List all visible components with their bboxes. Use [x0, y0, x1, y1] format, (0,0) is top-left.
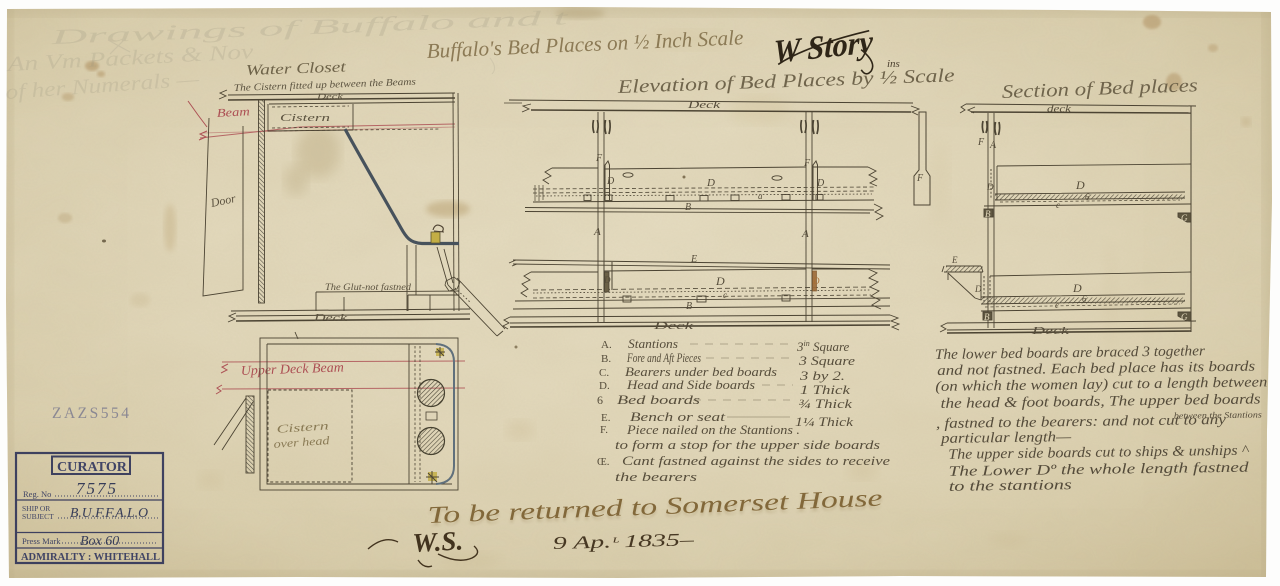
svg-text:3 Square: 3 Square [798, 353, 855, 368]
svg-text:F.: F. [600, 424, 608, 436]
svg-text:D: D [715, 274, 725, 288]
svg-text:G: G [1181, 312, 1188, 322]
svg-text:to form a stop for the upper s: to form a stop for the upper side boards [615, 437, 880, 452]
svg-text:E: E [690, 254, 697, 265]
svg-text:6: 6 [1082, 294, 1087, 304]
svg-text:c: c [1055, 300, 1059, 310]
svg-text:ZAZS554: ZAZS554 [52, 405, 132, 422]
svg-text:ins: ins [887, 58, 900, 70]
svg-text:Fore and Aft Pieces: Fore and Aft Pieces [626, 350, 701, 365]
svg-text:Cistern: Cistern [280, 112, 331, 124]
svg-text:Bed boards: Bed boards [617, 392, 700, 407]
svg-text:3 by 2.: 3 by 2. [799, 368, 845, 383]
svg-text:E.: E. [601, 412, 611, 424]
svg-text:F: F [977, 137, 985, 148]
svg-text:Deck: Deck [686, 100, 720, 111]
svg-text:D: D [812, 276, 820, 286]
svg-text:deck: deck [1047, 104, 1072, 115]
svg-text:particular length—: particular length— [940, 429, 1071, 447]
svg-text:D: D [1072, 281, 1082, 295]
svg-text:F: F [916, 173, 924, 184]
svg-text:D: D [974, 284, 982, 294]
svg-text:E: E [951, 255, 958, 265]
svg-text:SUBJECT: SUBJECT [22, 512, 54, 521]
svg-text:B: B [985, 209, 991, 219]
svg-text:to the stantions: to the stantions [949, 477, 1073, 495]
svg-text:between the Stantions: between the Stantions [1174, 409, 1263, 420]
svg-text:The Glut-not fastned: The Glut-not fastned [325, 282, 412, 292]
svg-text:A.: A. [601, 339, 612, 351]
svg-text:1¼ Thick: 1¼ Thick [795, 414, 853, 429]
svg-text:Deck: Deck [652, 320, 695, 332]
svg-text:A: A [989, 140, 997, 151]
svg-text:B: B [685, 202, 691, 213]
svg-text:6: 6 [1085, 192, 1090, 202]
svg-text:Beam: Beam [216, 104, 250, 120]
svg-text:B.U.F.F.A.L.O: B.U.F.F.A.L.O [70, 506, 148, 521]
svg-text:a: a [758, 191, 763, 201]
svg-text:9 Ap.ᶫ 1835–: 9 Ap.ᶫ 1835– [553, 529, 696, 553]
svg-text:Deck: Deck [1030, 325, 1070, 337]
svg-text:c: c [1056, 200, 1060, 210]
svg-text:Press Mark: Press Mark [22, 536, 61, 546]
svg-text:Cant fastned against the sides: Cant fastned against the sides to receiv… [622, 453, 890, 468]
svg-text:the bearers: the bearers [615, 469, 697, 484]
svg-text:Reg. No: Reg. No [23, 489, 51, 499]
svg-text:CURATOR: CURATOR [57, 459, 127, 474]
svg-text:D: D [606, 176, 615, 187]
svg-text:Œ.: Œ. [597, 456, 610, 468]
svg-text:6: 6 [597, 393, 603, 407]
svg-text:B.: B. [601, 353, 611, 365]
svg-text:Piece nailed on the Stantions: Piece nailed on the Stantions . [626, 422, 800, 437]
svg-text:Stantions: Stantions [628, 336, 678, 351]
svg-text:Head and Side boards: Head and Side boards [626, 377, 755, 392]
svg-text:Deck: Deck [316, 91, 344, 101]
svg-text:Box 60: Box 60 [80, 534, 119, 549]
svg-text:D.: D. [599, 380, 610, 392]
svg-text:1 Thick: 1 Thick [800, 382, 850, 397]
svg-text:B: B [984, 312, 990, 322]
svg-text:7575: 7575 [76, 479, 118, 498]
svg-text:¾ Thick: ¾ Thick [798, 396, 852, 411]
svg-text:D: D [986, 182, 994, 192]
svg-text:F: F [595, 153, 603, 164]
svg-text:W.S.: W.S. [412, 525, 464, 558]
svg-text:G: G [1181, 213, 1188, 223]
svg-text:D: D [816, 178, 825, 189]
svg-text:D: D [1075, 178, 1085, 192]
svg-text:A: A [593, 226, 601, 238]
svg-text:Deck: Deck [312, 313, 347, 324]
svg-text:B: B [686, 301, 692, 312]
svg-text:C.: C. [599, 367, 609, 379]
svg-text:D: D [603, 275, 611, 285]
svg-text:ADMIRALTY : WHITEHALL: ADMIRALTY : WHITEHALL [21, 551, 160, 563]
svg-text:F: F [803, 158, 811, 169]
svg-text:A: A [801, 228, 809, 240]
svg-text:D: D [706, 177, 715, 189]
svg-text:c: c [723, 290, 727, 300]
